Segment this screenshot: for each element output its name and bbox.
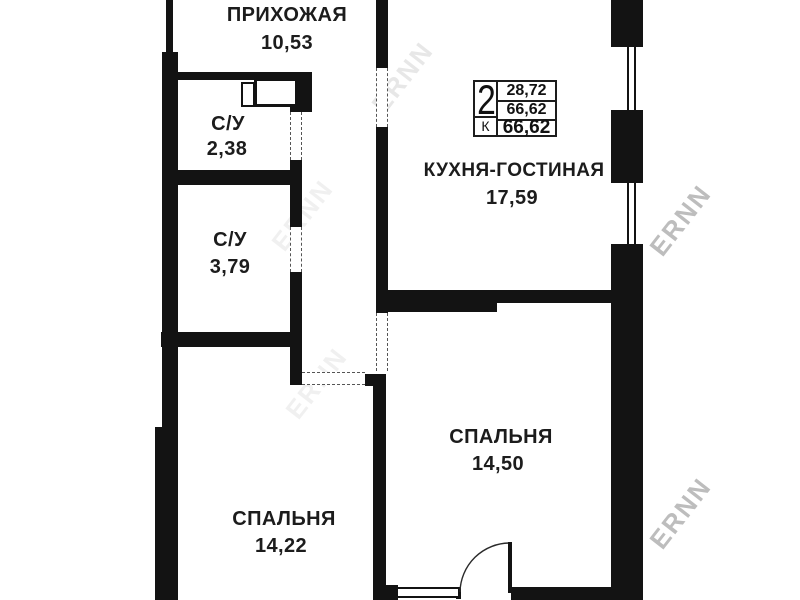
wall (497, 290, 611, 303)
room-label-hallway: ПРИХОЖАЯ (227, 4, 347, 27)
window (611, 183, 643, 244)
wall (161, 332, 302, 347)
door-opening (290, 227, 302, 272)
area-value-1: 28,72 (498, 82, 555, 100)
room-area-bedroom-left: 14,22 (255, 535, 307, 558)
window-frame-line (634, 47, 636, 110)
window (611, 47, 643, 110)
room-area-bathroom-large: 3,79 (210, 256, 251, 279)
room-area-bathroom-small: 2,38 (207, 138, 248, 161)
wall (611, 0, 643, 47)
coefficient-label: К (475, 118, 496, 135)
washing-machine-icon (241, 82, 255, 107)
room-label-bathroom-small: С/У (211, 113, 245, 136)
floor-plan: ERNN ERNN ERNN ERNN ERNN (0, 0, 800, 600)
wall (290, 160, 302, 227)
watermark-text: ERNN (265, 174, 340, 257)
wall (511, 587, 611, 600)
room-area-bedroom-right: 14,50 (472, 453, 524, 476)
area-value-3: 66,62 (498, 120, 555, 135)
wall (376, 290, 497, 312)
apartment-info-box: 2 К 28,72 66,62 66,62 (473, 80, 557, 137)
door-opening (302, 372, 365, 385)
room-label-bedroom-left: СПАЛЬНЯ (232, 508, 336, 531)
wall (166, 0, 173, 52)
wall (611, 244, 643, 600)
window-frame-line (627, 183, 629, 244)
door-opening (376, 313, 388, 371)
wall (162, 52, 178, 600)
room-area-kitchen-living: 17,59 (486, 187, 538, 210)
rooms-count: 2 (477, 82, 494, 116)
room-label-kitchen-living: КУХНЯ-ГОСТИНАЯ (424, 160, 605, 182)
wall (155, 427, 162, 600)
wall (376, 127, 388, 313)
wall (611, 110, 643, 183)
watermark-text: ERNN (643, 472, 718, 555)
window-frame-line (627, 47, 629, 110)
door-opening (376, 68, 388, 127)
room-label-bedroom-right: СПАЛЬНЯ (449, 426, 553, 449)
wall (290, 347, 302, 385)
wall (290, 272, 302, 332)
window-sill (396, 587, 460, 598)
door-opening (290, 112, 302, 160)
watermark-text: ERNN (643, 179, 718, 262)
room-label-bathroom-large: С/У (213, 229, 247, 252)
window-frame-line (634, 183, 636, 244)
wall (373, 374, 386, 600)
bathtub-icon (254, 78, 298, 107)
room-area-hallway: 10,53 (261, 32, 313, 55)
door-arc (454, 537, 516, 599)
wall (178, 170, 290, 185)
area-value-2: 66,62 (498, 102, 555, 118)
wall (376, 0, 388, 68)
